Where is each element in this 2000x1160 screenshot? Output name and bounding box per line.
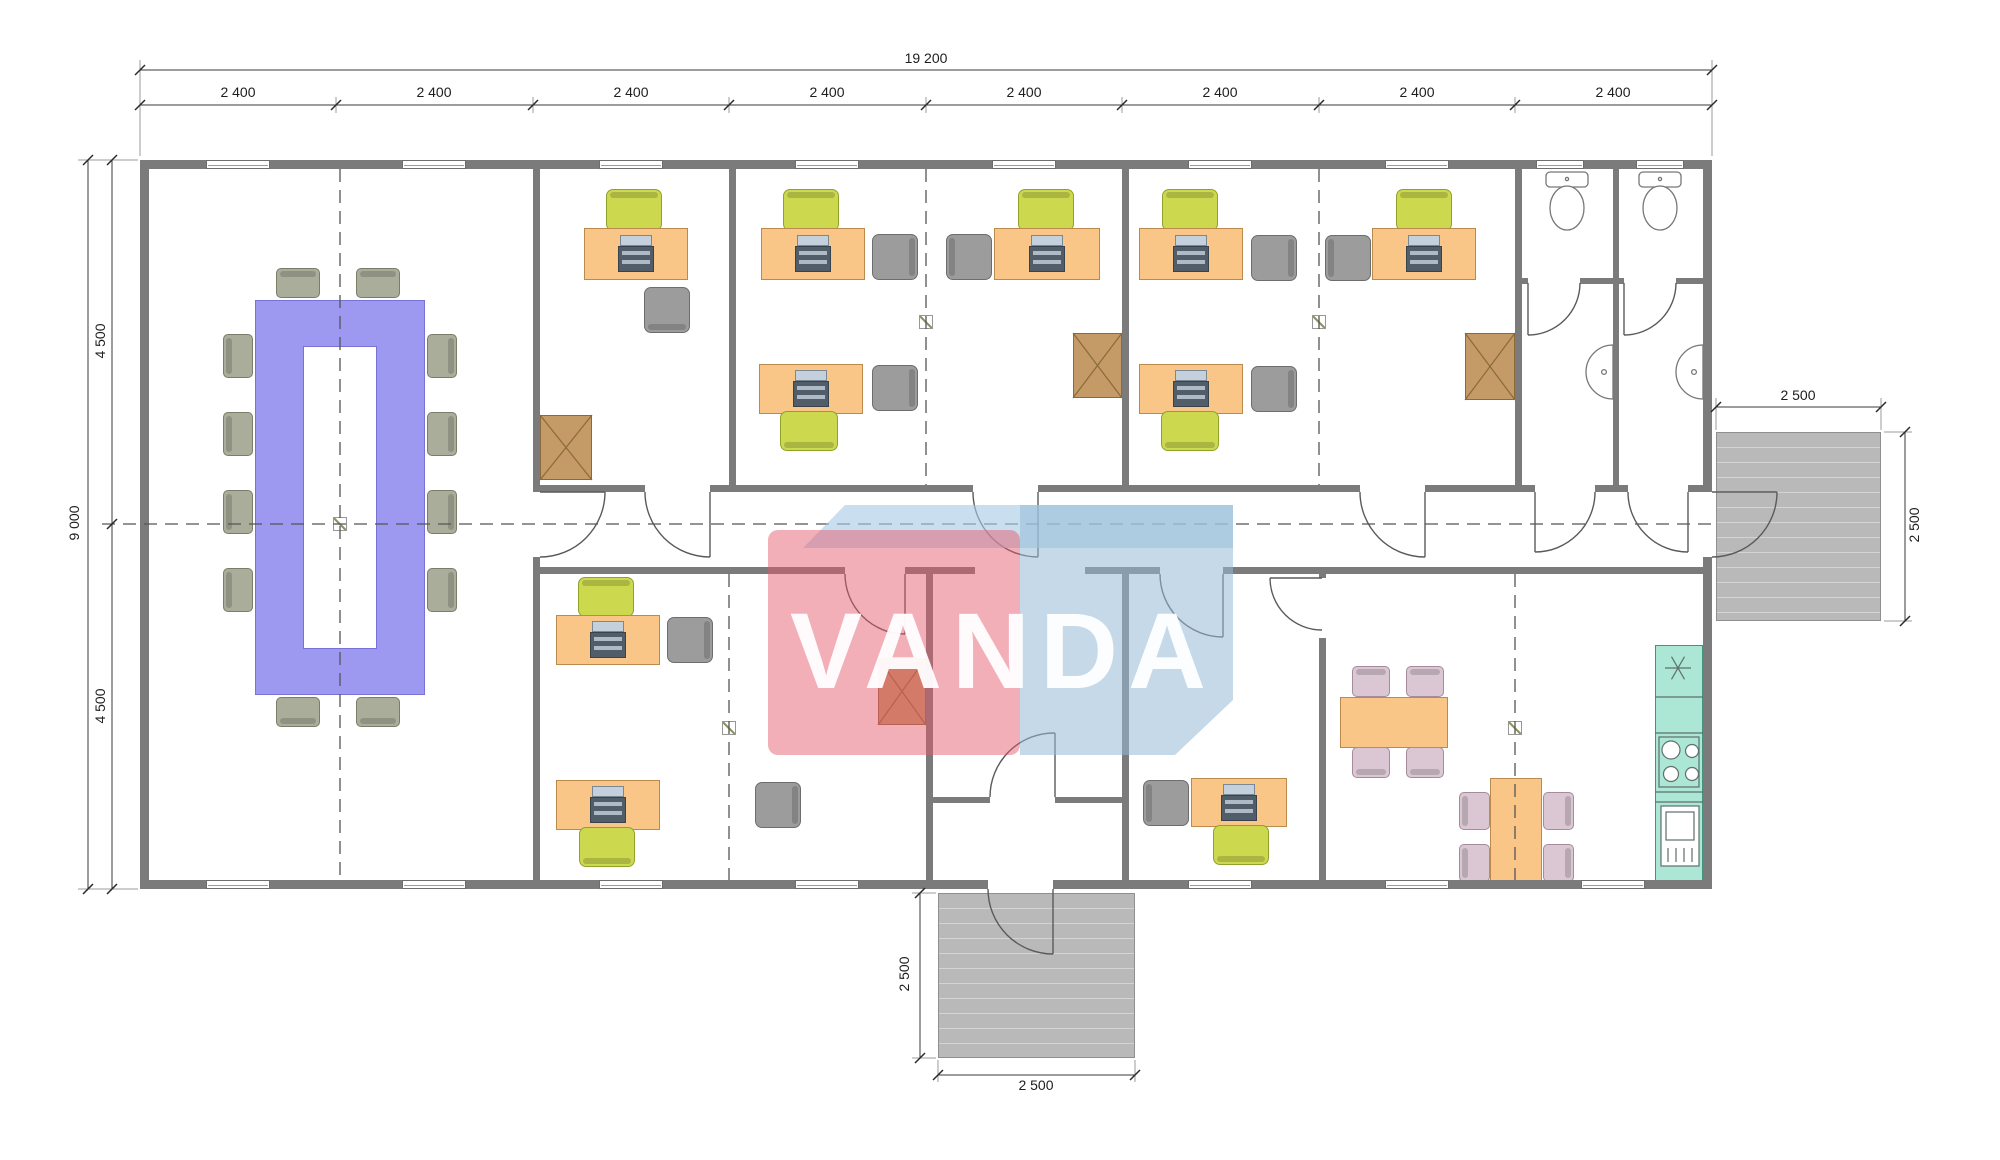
cafe-chair [1406, 747, 1444, 778]
grid-marker [919, 315, 933, 329]
computer-icon [1173, 370, 1209, 407]
guest-chair [872, 365, 918, 411]
guest-chair [1251, 366, 1297, 412]
cabinet [1073, 333, 1122, 398]
dimension-total-width: 19 200 [826, 50, 1026, 66]
computer-icon [618, 235, 654, 272]
task-chair [1162, 189, 1218, 231]
computer-icon [590, 786, 626, 823]
conference-chair [276, 697, 320, 727]
conference-chair [356, 697, 400, 727]
computer-icon [1173, 235, 1209, 272]
door-opening [1624, 278, 1676, 284]
conference-chair [427, 490, 457, 534]
window [599, 160, 663, 169]
computer-icon [1029, 235, 1065, 272]
exterior-wall-left [140, 169, 149, 880]
conference-chair [427, 334, 457, 378]
window [795, 880, 859, 889]
window [1188, 880, 1252, 889]
cabinet [540, 415, 592, 480]
dimension-half-height: 4 500 [92, 301, 108, 381]
door-opening [1528, 278, 1580, 284]
dimension-bay: 2 400 [777, 84, 877, 100]
floor-plan: VANDA 19 200 2 400 2 400 2 400 2 400 2 4… [0, 0, 2000, 1160]
cafe-chair [1459, 844, 1490, 882]
task-chair [578, 577, 634, 617]
door-opening [533, 492, 540, 557]
cafe-chair [1352, 666, 1390, 697]
dimension-bay: 2 400 [1563, 84, 1663, 100]
dimension-bottom-entrance-depth: 2 500 [896, 934, 912, 1014]
entrance-door-opening [988, 880, 1053, 889]
cabinet [1465, 333, 1515, 400]
door-opening [845, 567, 905, 574]
grid-marker [722, 721, 736, 735]
task-chair [579, 827, 635, 867]
kitchen-counter [1655, 645, 1703, 882]
conference-chair [223, 412, 253, 456]
window [599, 880, 663, 889]
conference-chair [223, 334, 253, 378]
task-chair [783, 189, 839, 231]
computer-icon [1221, 784, 1257, 821]
door-opening [990, 797, 1055, 803]
window [206, 880, 270, 889]
dimension-right-entrance-width: 2 500 [1748, 387, 1848, 403]
window [1536, 160, 1584, 169]
window [992, 160, 1056, 169]
dimension-bay: 2 400 [384, 84, 484, 100]
corridor-opening [975, 567, 1085, 574]
wall-office-toilets [1515, 169, 1522, 490]
computer-icon [793, 370, 829, 407]
dimension-half-height: 4 500 [92, 666, 108, 746]
task-chair [1213, 825, 1269, 865]
cafe-chair [1543, 792, 1574, 830]
conference-table-opening [303, 346, 377, 649]
stairs-right-entrance [1716, 432, 1881, 621]
conference-chair [223, 568, 253, 612]
cafe-chair [1406, 666, 1444, 697]
conference-chair [427, 412, 457, 456]
dimension-bay: 2 400 [974, 84, 1074, 100]
guest-chair [1251, 235, 1297, 281]
window [1636, 160, 1684, 169]
guest-chair [644, 287, 690, 333]
door-opening [1319, 578, 1326, 638]
cafe-chair [1543, 844, 1574, 882]
dimension-bay: 2 400 [188, 84, 288, 100]
door-opening [1628, 485, 1688, 492]
stairs-bottom-entrance [938, 893, 1135, 1058]
window [1188, 160, 1252, 169]
guest-chair [667, 617, 713, 663]
window [402, 880, 466, 889]
window [1385, 880, 1449, 889]
dimension-right-entrance-depth: 2 500 [1906, 485, 1922, 565]
window [206, 160, 270, 169]
guest-chair [872, 234, 918, 280]
guest-chair [755, 782, 801, 828]
watermark-text: VANDA [770, 586, 1236, 716]
window [1385, 160, 1449, 169]
dimension-total-height: 9 000 [66, 483, 82, 563]
wall-office-ab [729, 169, 736, 485]
task-chair [606, 189, 662, 231]
dimension-bottom-entrance-width: 2 500 [986, 1077, 1086, 1093]
conference-chair [356, 268, 400, 298]
window [1581, 880, 1645, 889]
entrance-door-opening [1703, 492, 1712, 557]
dimension-bay: 2 400 [1170, 84, 1270, 100]
task-chair [780, 411, 838, 451]
computer-icon [590, 621, 626, 658]
door-opening [645, 485, 710, 492]
door-opening [1160, 567, 1223, 574]
cafe-table [1490, 778, 1542, 884]
task-chair [1396, 189, 1452, 231]
wall-office-bc [1122, 169, 1129, 485]
grid-marker [333, 517, 347, 531]
wall-corridor-north [540, 485, 1703, 492]
wall-toilet-divider [1613, 169, 1619, 490]
wall-corridor-south [540, 567, 1703, 574]
computer-icon [1406, 235, 1442, 272]
exterior-wall-top [140, 160, 1712, 169]
conference-chair [427, 568, 457, 612]
door-opening [1360, 485, 1425, 492]
guest-chair [1325, 235, 1371, 281]
dimension-bay: 2 400 [581, 84, 681, 100]
grid-marker [1508, 721, 1522, 735]
window [795, 160, 859, 169]
cafe-table [1340, 697, 1448, 748]
cafe-chair [1459, 792, 1490, 830]
cafe-chair [1352, 747, 1390, 778]
sink-icon [1586, 345, 1703, 399]
door-opening [1535, 485, 1595, 492]
computer-icon [795, 235, 831, 272]
task-chair [1018, 189, 1074, 231]
conference-chair [223, 490, 253, 534]
guest-chair [946, 234, 992, 280]
task-chair [1161, 411, 1219, 451]
exterior-wall-bottom [140, 880, 1712, 889]
dimension-bay: 2 400 [1367, 84, 1467, 100]
door-opening [973, 485, 1038, 492]
conference-chair [276, 268, 320, 298]
grid-marker [1312, 315, 1326, 329]
window [402, 160, 466, 169]
guest-chair [1143, 780, 1189, 826]
